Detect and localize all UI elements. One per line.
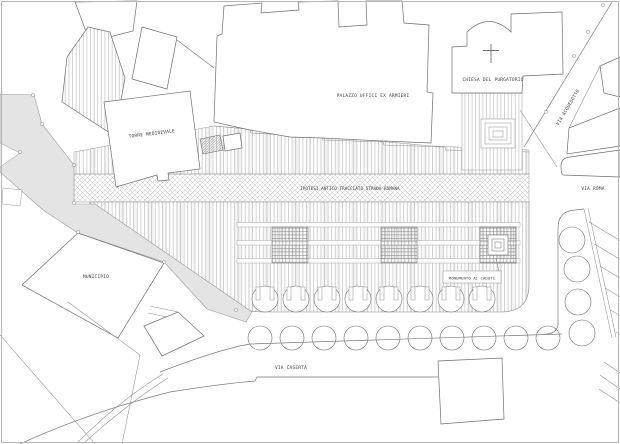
parking-stall-line xyxy=(594,244,620,259)
corner-hatch-lines xyxy=(599,362,620,403)
survey-marker xyxy=(545,111,547,113)
pergola-post xyxy=(349,287,353,300)
tree-column-east xyxy=(559,227,595,346)
survey-marker xyxy=(77,231,79,233)
tree-circle xyxy=(559,227,585,253)
parking-stall-line xyxy=(605,288,620,297)
tree-circle xyxy=(565,289,591,315)
boundary-line xyxy=(177,40,214,68)
label-chiesa-purgatorio: CHIESA DEL PURGATORIO xyxy=(462,77,523,83)
survey-marker xyxy=(32,94,34,96)
pergola-post xyxy=(425,287,429,300)
building-southeast xyxy=(438,358,504,424)
tree-circle xyxy=(312,326,336,350)
label-via-roma: VIA ROMA xyxy=(581,186,604,192)
pergola-post xyxy=(256,287,260,300)
via-caserta-curve-b xyxy=(84,378,168,443)
tree-circle xyxy=(569,320,595,346)
war-memorial-monument xyxy=(480,227,516,263)
building-south-small xyxy=(144,312,204,356)
site-plan-drawing: TORRE MEDIOEVALE PALAZZO UFFICI EX ARMIE… xyxy=(0,0,620,444)
building-east-lower xyxy=(567,108,620,154)
survey-marker xyxy=(573,55,575,57)
tree-circle xyxy=(536,326,560,350)
tree-circle xyxy=(280,326,304,350)
stair-landing xyxy=(223,133,242,151)
survey-marker xyxy=(73,164,75,166)
via-caserta-south-edge xyxy=(20,377,438,444)
building-palazzo-uffici xyxy=(214,1,433,143)
pergola-post xyxy=(380,287,384,300)
survey-marker xyxy=(41,123,43,125)
tree-circle xyxy=(564,256,590,282)
pergola-post xyxy=(473,287,477,300)
building-east-upper xyxy=(600,57,620,97)
pergola-post xyxy=(318,287,322,300)
survey-marker xyxy=(73,202,75,204)
planting-grid-east xyxy=(381,227,417,263)
pergola-post xyxy=(332,287,336,300)
via-caserta-curve-a xyxy=(77,374,163,443)
pergola-post xyxy=(270,287,274,300)
survey-marker xyxy=(587,31,589,33)
pergola-post xyxy=(394,287,398,300)
pergola-post xyxy=(487,287,491,300)
building-northwest-square xyxy=(132,27,177,89)
site-plan-canvas: TORRE MEDIOEVALE PALAZZO UFFICI EX ARMIE… xyxy=(0,0,620,444)
label-via-acquedotto: VIA ACQUEDOTTO xyxy=(555,88,581,126)
survey-marker xyxy=(163,261,165,263)
label-monumento-caduti: MONUMENTO AI CADUTI xyxy=(449,276,495,281)
road-white-parcel xyxy=(2,188,22,206)
pergola-post xyxy=(411,287,415,300)
planting-grid-west xyxy=(272,227,308,263)
building-via-roma-block xyxy=(561,150,620,177)
tree-circle xyxy=(248,326,272,350)
label-via-caserta: VIA CASERTA xyxy=(275,365,307,371)
tree-circle xyxy=(376,326,400,350)
tree-circle xyxy=(472,326,496,350)
courtyard-steps-feature xyxy=(481,119,515,148)
tree-circle xyxy=(504,326,528,350)
pergola-post xyxy=(363,287,367,300)
pergola-post xyxy=(442,287,446,300)
label-municipio: MUNICIPIO xyxy=(83,274,109,280)
pergola-post xyxy=(287,287,291,300)
survey-marker xyxy=(602,4,604,6)
tree-circle xyxy=(344,326,368,350)
pergola-post xyxy=(456,287,460,300)
label-strada-romana: IPOTESI ANTICO TRACCIATO STRADA ROMANA xyxy=(300,186,400,191)
pergola-post xyxy=(301,287,305,300)
parking-stall-line xyxy=(589,222,620,241)
survey-marker xyxy=(19,151,21,153)
label-palazzo-uffici: PALAZZO UFFICI EX ARMIERI xyxy=(337,93,410,99)
parking-stalls xyxy=(589,222,620,334)
tree-row-via-caserta xyxy=(248,326,560,350)
survey-marker xyxy=(235,309,237,311)
